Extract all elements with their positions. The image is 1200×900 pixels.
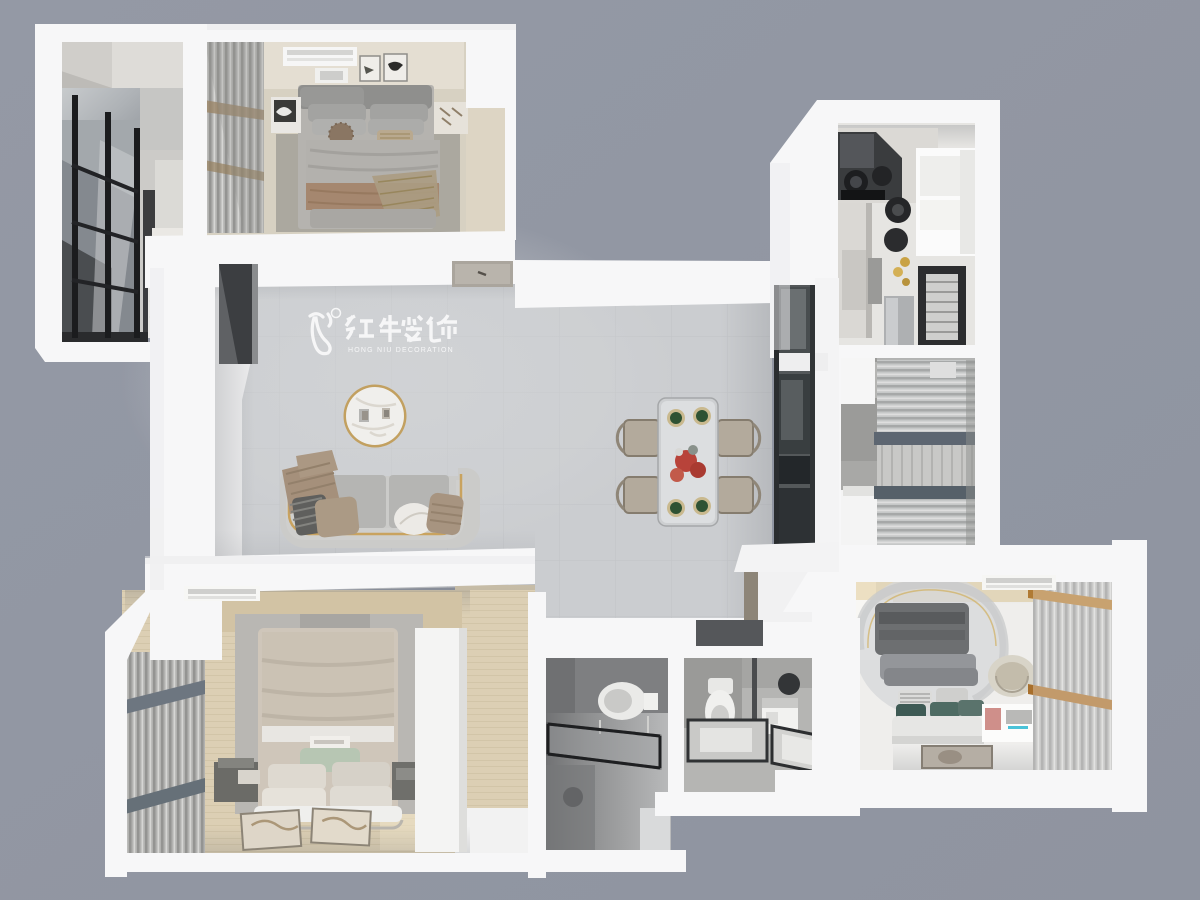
svg-text:HONG NIU DECORATION: HONG NIU DECORATION [348,347,454,354]
